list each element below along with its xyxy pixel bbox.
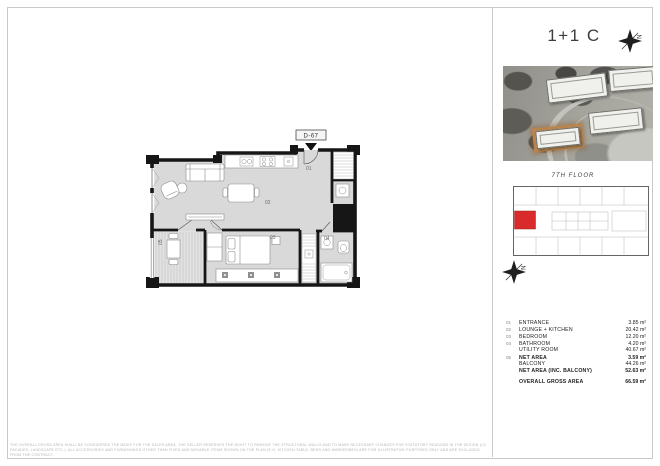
tv-console (186, 214, 224, 220)
room-label: OVERALL GROSS AREA (519, 379, 610, 386)
compass-north-letter: N (519, 266, 525, 270)
table-row: 05 NET AREA 3.59 m² (506, 354, 646, 361)
shower-tub (321, 263, 352, 282)
floor-plan: D-67 (140, 118, 375, 298)
room-area-value: 40.67 m² (610, 347, 646, 354)
room-number: 04 (506, 340, 519, 347)
table-row: 01 ENTRANCE 3.85 m² (506, 319, 646, 326)
room-label: UTILITY ROOM (519, 347, 610, 354)
utility-shelves (302, 234, 316, 282)
area-table-body: 01 ENTRANCE 3.85 m² 02 LOUNGE + KITCHEN … (506, 319, 646, 386)
washing-machine (336, 184, 349, 197)
bed (226, 236, 270, 264)
toilet (338, 241, 349, 253)
table-row: 04 BATHROOM 4.20 m² (506, 340, 646, 347)
entrance-closet (334, 152, 354, 179)
room-area-value: 12.20 m² (610, 334, 646, 341)
room-number: 02 (506, 326, 519, 333)
compass-icon: N (501, 259, 527, 285)
table-row: 03 BEDROOM 12.20 m² (506, 333, 646, 340)
dresser (216, 269, 298, 282)
table-row: NET AREA (INC. BALCONY) 52.63 m² (506, 368, 646, 375)
floor-key-plan (512, 185, 650, 257)
compass-north-letter: N (635, 35, 641, 39)
site-aerial-photo (503, 66, 653, 161)
compass-icon: N (617, 28, 643, 54)
disclaimer-text: THE OVERALL GROSS AREA SHALL BE CONSIDER… (10, 443, 492, 457)
room-number: 01 (506, 319, 519, 326)
building-roof (535, 127, 581, 150)
room-number: 03 (506, 333, 519, 340)
room-label: ENTRANCE (519, 320, 610, 327)
room-label: LOUNGE + KITCHEN (519, 327, 610, 334)
room-area-value: 44.26 m² (610, 361, 646, 368)
room-label: BALCONY (519, 361, 610, 368)
balcony-railing (150, 238, 155, 278)
room-area-value: 66.59 m² (610, 379, 646, 386)
highlighted-unit (515, 211, 536, 229)
room-label: BEDROOM (519, 334, 610, 341)
table-row: UTILITY ROOM 40.67 m² (506, 347, 646, 354)
room-number: 05 (506, 354, 519, 361)
stove (260, 157, 275, 167)
area-table: 01 ENTRANCE 3.85 m² 02 LOUNGE + KITCHEN … (506, 319, 646, 386)
room-area-value: 3.85 m² (610, 320, 646, 327)
unit-number-label: D-67 (303, 134, 318, 140)
disclaimer-line: FACADES, LANDSCAPE ETC.). ALL ACCESSORIE… (10, 448, 492, 458)
wardrobe (207, 233, 222, 261)
shaft (333, 204, 355, 230)
kitchen-counter (225, 155, 298, 168)
room-area-value: 52.63 m² (610, 368, 646, 375)
room-label-bedroom: 03 (270, 235, 276, 241)
room-label: NET AREA (INC. BALCONY) (519, 368, 610, 375)
floor-label: 7TH FLOOR (494, 173, 652, 179)
room-label-lounge: 02 (265, 200, 271, 206)
table-row: 02 LOUNGE + KITCHEN 20.42 m² (506, 326, 646, 333)
room-label-balcony: 05 (158, 239, 164, 245)
building-roof (608, 66, 653, 92)
entrance-arrow-icon (305, 143, 317, 151)
room-area-value: 20.42 m² (610, 327, 646, 334)
room-label-bathroom: 04 (324, 236, 330, 242)
sofa (186, 164, 224, 181)
table-row: OVERALL GROSS AREA 66.59 m² (506, 379, 646, 386)
room-label-entrance: 01 (306, 166, 312, 172)
table-row: BALCONY 44.26 m² (506, 361, 646, 368)
dining-table (223, 184, 259, 202)
